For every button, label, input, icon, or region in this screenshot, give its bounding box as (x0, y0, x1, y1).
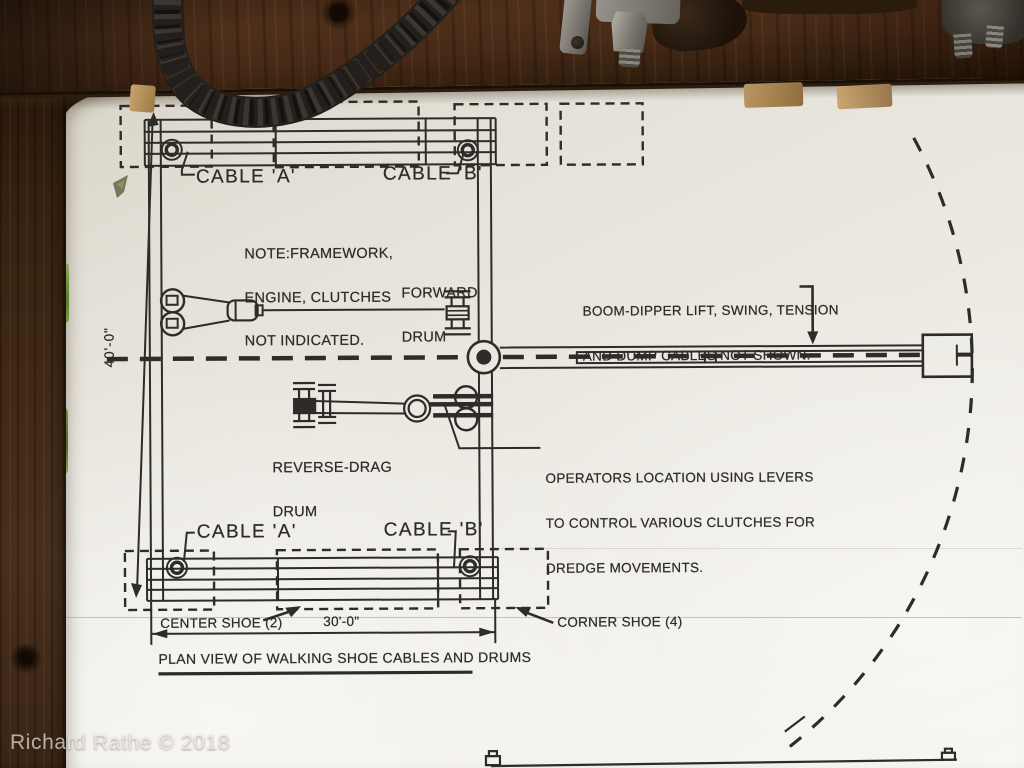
hex-bolt (610, 11, 648, 53)
strap-hole (571, 36, 584, 49)
watermark: Richard Rathe © 2018 (10, 731, 230, 755)
bark-debris (742, 0, 917, 14)
threaded-bolt-stub (618, 48, 640, 67)
steel-cable (0, 0, 1024, 768)
photo-of-diagram-sign: CABLE 'A' CABLE 'B' NOTE:FRAMEWORK, ENGI… (0, 0, 1024, 768)
threaded-bolt-stub (953, 33, 973, 58)
threaded-bolt-stub (985, 25, 1004, 48)
